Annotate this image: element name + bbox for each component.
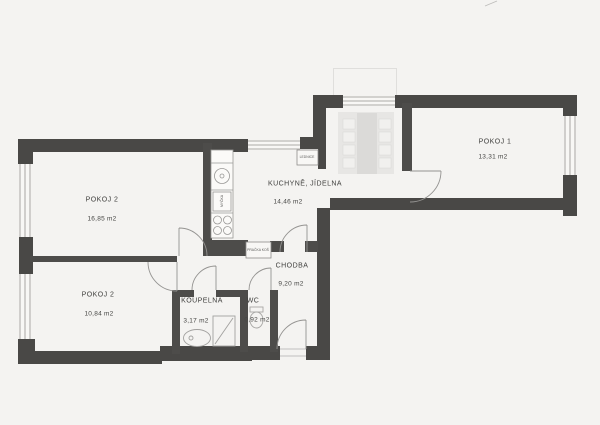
- room-area-pokoj1: 13,31 m2: [478, 154, 507, 161]
- room-label-pokoj2-top: POKOJ 2: [86, 197, 119, 204]
- room-label-pokoj2-bottom: POKOJ 2: [82, 292, 115, 299]
- room-label-chodba: CHODBA: [276, 263, 309, 270]
- window-balcony: [343, 96, 395, 106]
- room-area-chodba: 9,20 m2: [278, 281, 303, 288]
- room-label-koupelna: KOUPELNA: [181, 298, 223, 305]
- room-area-wc: 0,92 m2: [244, 317, 269, 324]
- dining-table-set: [338, 112, 394, 174]
- floor-plan-drawing: [0, 0, 600, 425]
- scan-mark: [485, 1, 497, 6]
- entry-threshold: [280, 349, 306, 356]
- bathtub-icon: [184, 330, 211, 347]
- washer-label: PRAČKA KOŠ: [247, 248, 269, 252]
- exterior-walls: [18, 95, 577, 364]
- window-pokoj1: [564, 115, 576, 175]
- fridge-label: LEDNICE: [300, 155, 315, 159]
- room-label-pokoj1: POKOJ 1: [479, 139, 512, 146]
- room-area-koupelna: 3,17 m2: [183, 318, 208, 325]
- room-area-kuchyne: 14,46 m2: [273, 199, 302, 206]
- window-left-bottom: [19, 273, 31, 340]
- shower-icon: [213, 316, 235, 346]
- floor-plan: POKOJ 2 16,85 m2 POKOJ 2 10,84 m2 POKOJ …: [0, 0, 600, 425]
- window-left-top: [19, 163, 31, 237]
- room-label-kuchyne: KUCHYNĚ, JÍDELNA: [268, 181, 342, 188]
- balcony-outline: [334, 69, 397, 97]
- room-area-pokoj2-bottom: 10,84 m2: [84, 311, 113, 318]
- window-kitchen: [248, 140, 300, 150]
- dishwasher-label: MYČKA: [220, 195, 224, 207]
- room-area-pokoj2-top: 16,85 m2: [87, 216, 116, 223]
- room-label-wc: WC: [247, 298, 260, 305]
